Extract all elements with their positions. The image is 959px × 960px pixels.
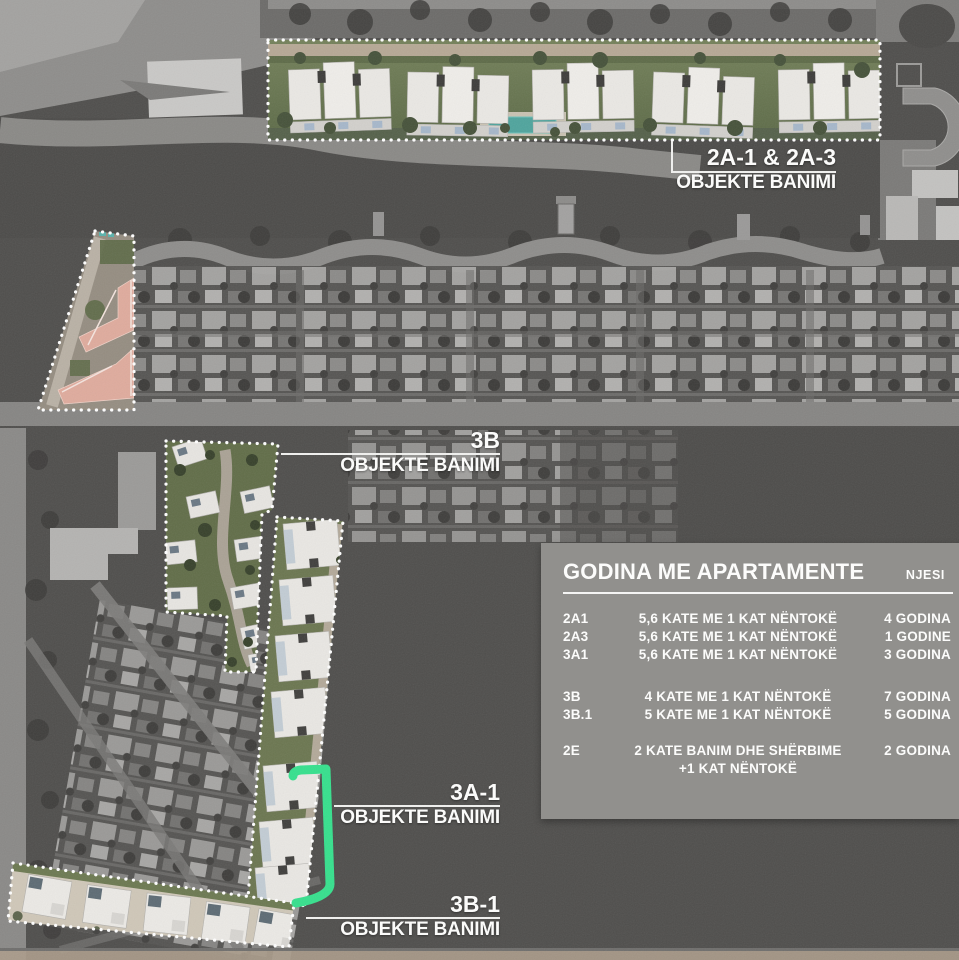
legend-row-code: 2A3 — [563, 628, 621, 646]
callout-3b: 3B OBJEKTE BANIMI — [340, 429, 500, 476]
legend-row-code: 3B — [563, 688, 621, 706]
legend-row-description: 5,6 KATE ME 1 KAT NËNTOKË — [621, 628, 855, 646]
legend-row: 3B 4 KATE ME 1 KAT NËNTOKË 7 GODINA — [563, 688, 953, 706]
legend-panel: GODINA ME APARTAMENTE NJESI 2A1 5,6 KATE… — [541, 543, 959, 819]
legend-row: 3B.1 5 KATE ME 1 KAT NËNTOKË 5 GODINA — [563, 706, 953, 724]
legend-row-code: 2A1 — [563, 610, 621, 628]
callout-3b1: 3B-1 OBJEKTE BANIMI — [340, 893, 500, 940]
legend-row-units: 2 GODINA — [855, 742, 953, 778]
site-plan-screenshot: 2A-1 & 2A-3 OBJEKTE BANIMI 3B OBJEKTE BA… — [0, 0, 959, 960]
legend-row-code: 3A1 — [563, 646, 621, 664]
callout-3a1: 3A-1 OBJEKTE BANIMI — [340, 781, 500, 828]
legend-row: 2E 2 KATE BANIM DHE SHËRBIME +1 KAT NËNT… — [563, 742, 953, 778]
legend-row-description: 5 KATE ME 1 KAT NËNTOKË — [621, 706, 855, 724]
legend-row-units: 7 GODINA — [855, 688, 953, 706]
legend-row: 2A1 5,6 KATE ME 1 KAT NËNTOKË 4 GODINA — [563, 610, 953, 628]
callout-3b1-type: OBJEKTE BANIMI — [340, 920, 500, 939]
callout-3b-type: OBJEKTE BANIMI — [340, 456, 500, 475]
legend-row-description: 2 KATE BANIM DHE SHËRBIME +1 KAT NËNTOKË — [621, 742, 855, 778]
legend-row-description: 5,6 KATE ME 1 KAT NËNTOKË — [621, 646, 855, 664]
legend-row-description-line2: +1 KAT NËNTOKË — [621, 760, 855, 778]
callout-3a1-code: 3A-1 — [450, 781, 500, 804]
legend-row-description-line1: 2 KATE BANIM DHE SHËRBIME — [621, 742, 855, 760]
legend-rows: 2A1 5,6 KATE ME 1 KAT NËNTOKË 4 GODINA 2… — [563, 610, 953, 778]
callout-3b-code: 3B — [471, 429, 500, 452]
legend-row: 3A1 5,6 KATE ME 1 KAT NËNTOKË 3 GODINA — [563, 646, 953, 664]
legend-row: 2A3 5,6 KATE ME 1 KAT NËNTOKË 1 GODINE — [563, 628, 953, 646]
legend-row-code: 3B.1 — [563, 706, 621, 724]
legend-row-code: 2E — [563, 742, 621, 778]
legend-row-units: 1 GODINE — [855, 628, 953, 646]
legend-title: GODINA ME APARTAMENTE — [563, 559, 864, 585]
callout-2a1-2a3-code: 2A-1 & 2A-3 — [707, 146, 836, 169]
legend-row-units: 4 GODINA — [855, 610, 953, 628]
legend-row-units: 3 GODINA — [855, 646, 953, 664]
legend-row-description: 4 KATE ME 1 KAT NËNTOKË — [621, 688, 855, 706]
legend-divider — [563, 592, 953, 594]
legend-units-header: NJESI — [906, 568, 945, 582]
callout-3b1-code: 3B-1 — [450, 893, 500, 916]
callout-3a1-type: OBJEKTE BANIMI — [340, 808, 500, 827]
legend-row-units: 5 GODINA — [855, 706, 953, 724]
legend-row-description: 5,6 KATE ME 1 KAT NËNTOKË — [621, 610, 855, 628]
callout-2a1-2a3: 2A-1 & 2A-3 OBJEKTE BANIMI — [676, 146, 836, 193]
callout-2a1-2a3-type: OBJEKTE BANIMI — [676, 173, 836, 192]
